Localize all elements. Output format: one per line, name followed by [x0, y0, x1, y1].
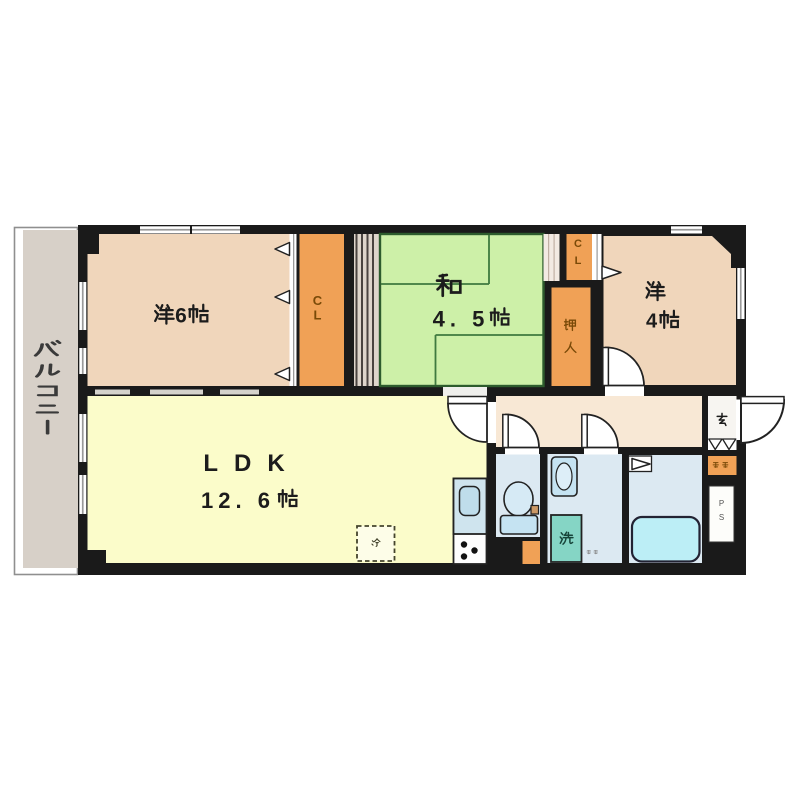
svg-text:L: L [314, 308, 322, 323]
svg-text:P: P [719, 499, 724, 508]
svg-text:LDK: LDK [203, 450, 300, 477]
svg-text:4. 5: 4. 5 [433, 307, 490, 332]
svg-text:S: S [719, 513, 724, 522]
svg-text:6: 6 [175, 305, 187, 328]
svg-text:C: C [574, 238, 582, 250]
svg-text:C: C [313, 293, 323, 308]
svg-text:L: L [575, 255, 582, 267]
svg-text:12. 6: 12. 6 [201, 488, 275, 513]
svg-text:4: 4 [646, 311, 658, 333]
